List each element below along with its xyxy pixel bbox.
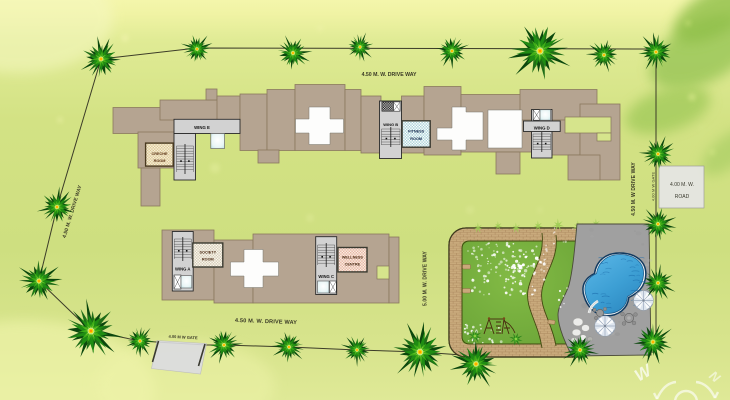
svg-text:4.00 M W GATE: 4.00 M W GATE: [651, 172, 656, 202]
svg-text:CENTRE: CENTRE: [345, 263, 361, 267]
svg-text:ROAD: ROAD: [675, 194, 690, 200]
svg-text:ROOM: ROOM: [202, 258, 214, 262]
svg-text:4.50 M. W. DRIVE WAY: 4.50 M. W. DRIVE WAY: [362, 72, 417, 78]
svg-text:ROOM: ROOM: [154, 159, 166, 163]
svg-text:WELLNESS: WELLNESS: [342, 256, 364, 260]
svg-text:WING E: WING E: [194, 125, 210, 130]
svg-text:5.00 M. W. DRIVE WAY: 5.00 M. W. DRIVE WAY: [423, 250, 429, 305]
svg-text:4.00 M. W.: 4.00 M. W.: [670, 182, 694, 188]
svg-text:ROOM: ROOM: [410, 137, 422, 141]
svg-text:4.50 M. W DRIVE WAY: 4.50 M. W DRIVE WAY: [631, 162, 637, 216]
svg-text:WING A: WING A: [175, 267, 190, 272]
svg-text:FITNESS: FITNESS: [408, 130, 425, 134]
svg-text:WING B: WING B: [383, 122, 398, 127]
svg-text:WING D: WING D: [534, 125, 550, 130]
svg-text:CRECHE: CRECHE: [151, 152, 168, 156]
svg-text:SOCIETY: SOCIETY: [199, 251, 216, 255]
svg-text:WING C: WING C: [318, 274, 334, 279]
